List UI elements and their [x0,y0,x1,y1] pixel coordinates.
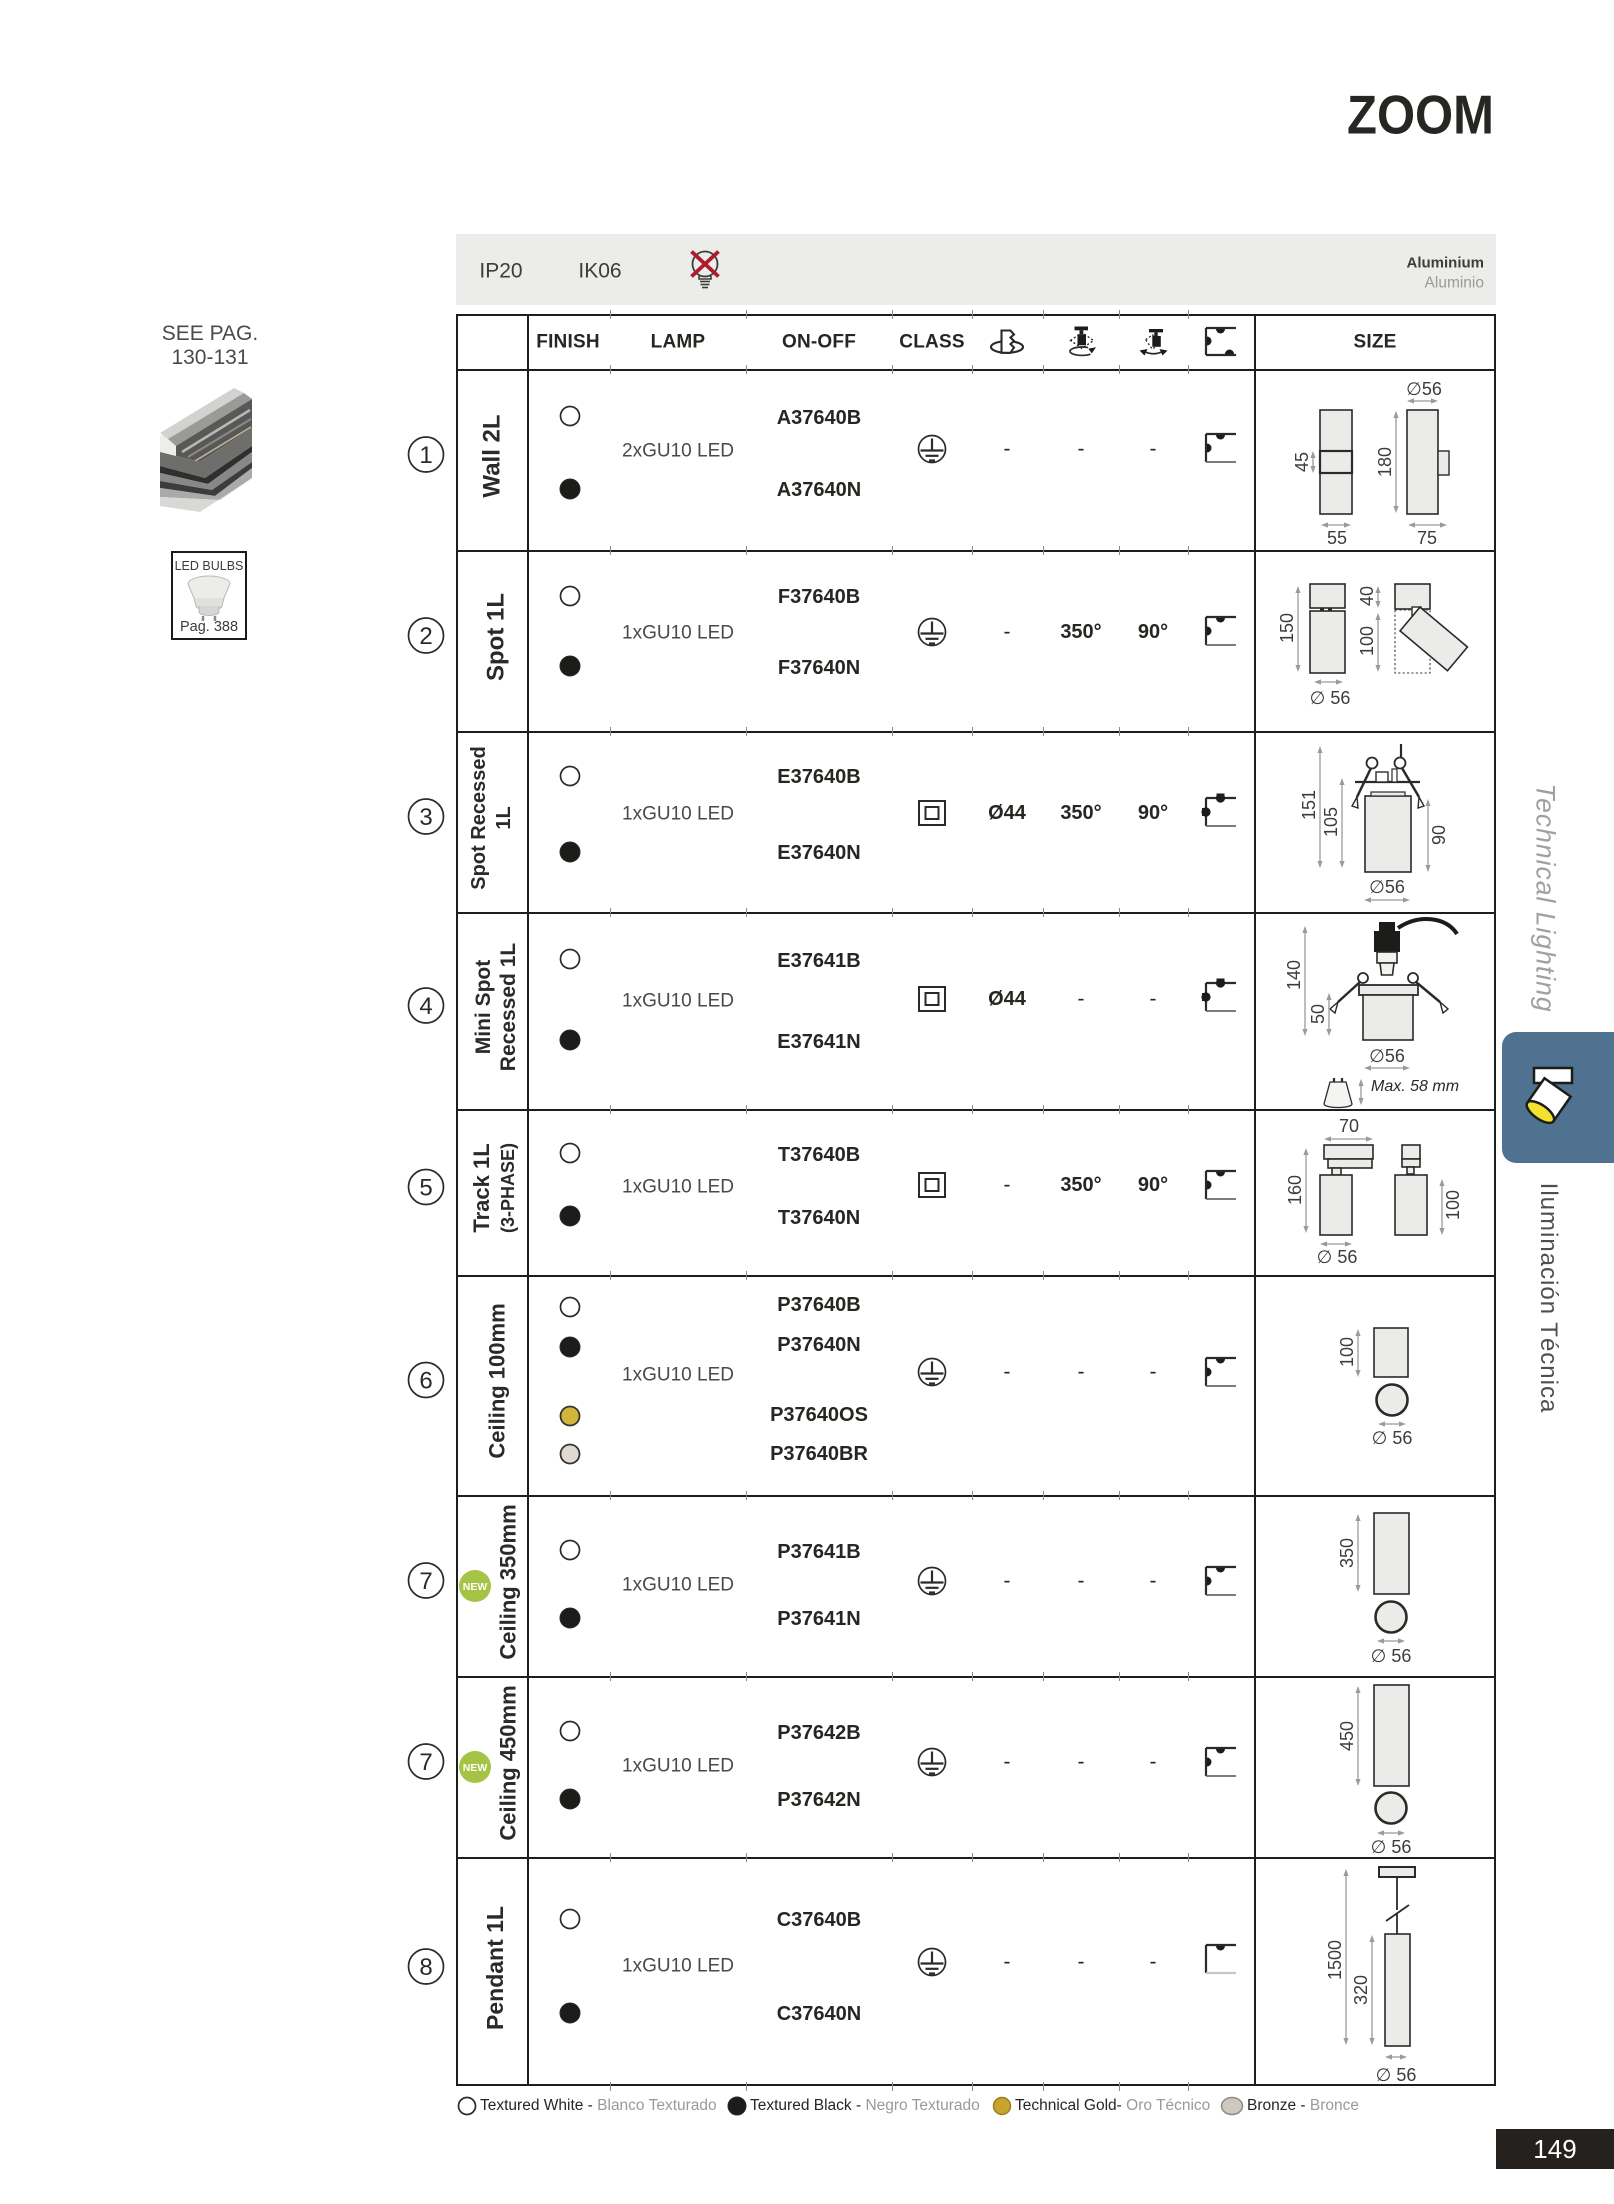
svg-text:8: 8 [419,1954,432,1981]
svg-text:5: 5 [419,1175,432,1202]
svg-text:2: 2 [419,623,432,650]
svg-text:3: 3 [419,804,432,831]
svg-text:7: 7 [419,1568,432,1595]
svg-text:7: 7 [419,1749,432,1776]
svg-text:1: 1 [419,442,432,469]
svg-text:6: 6 [419,1368,432,1395]
svg-text:4: 4 [419,993,432,1020]
